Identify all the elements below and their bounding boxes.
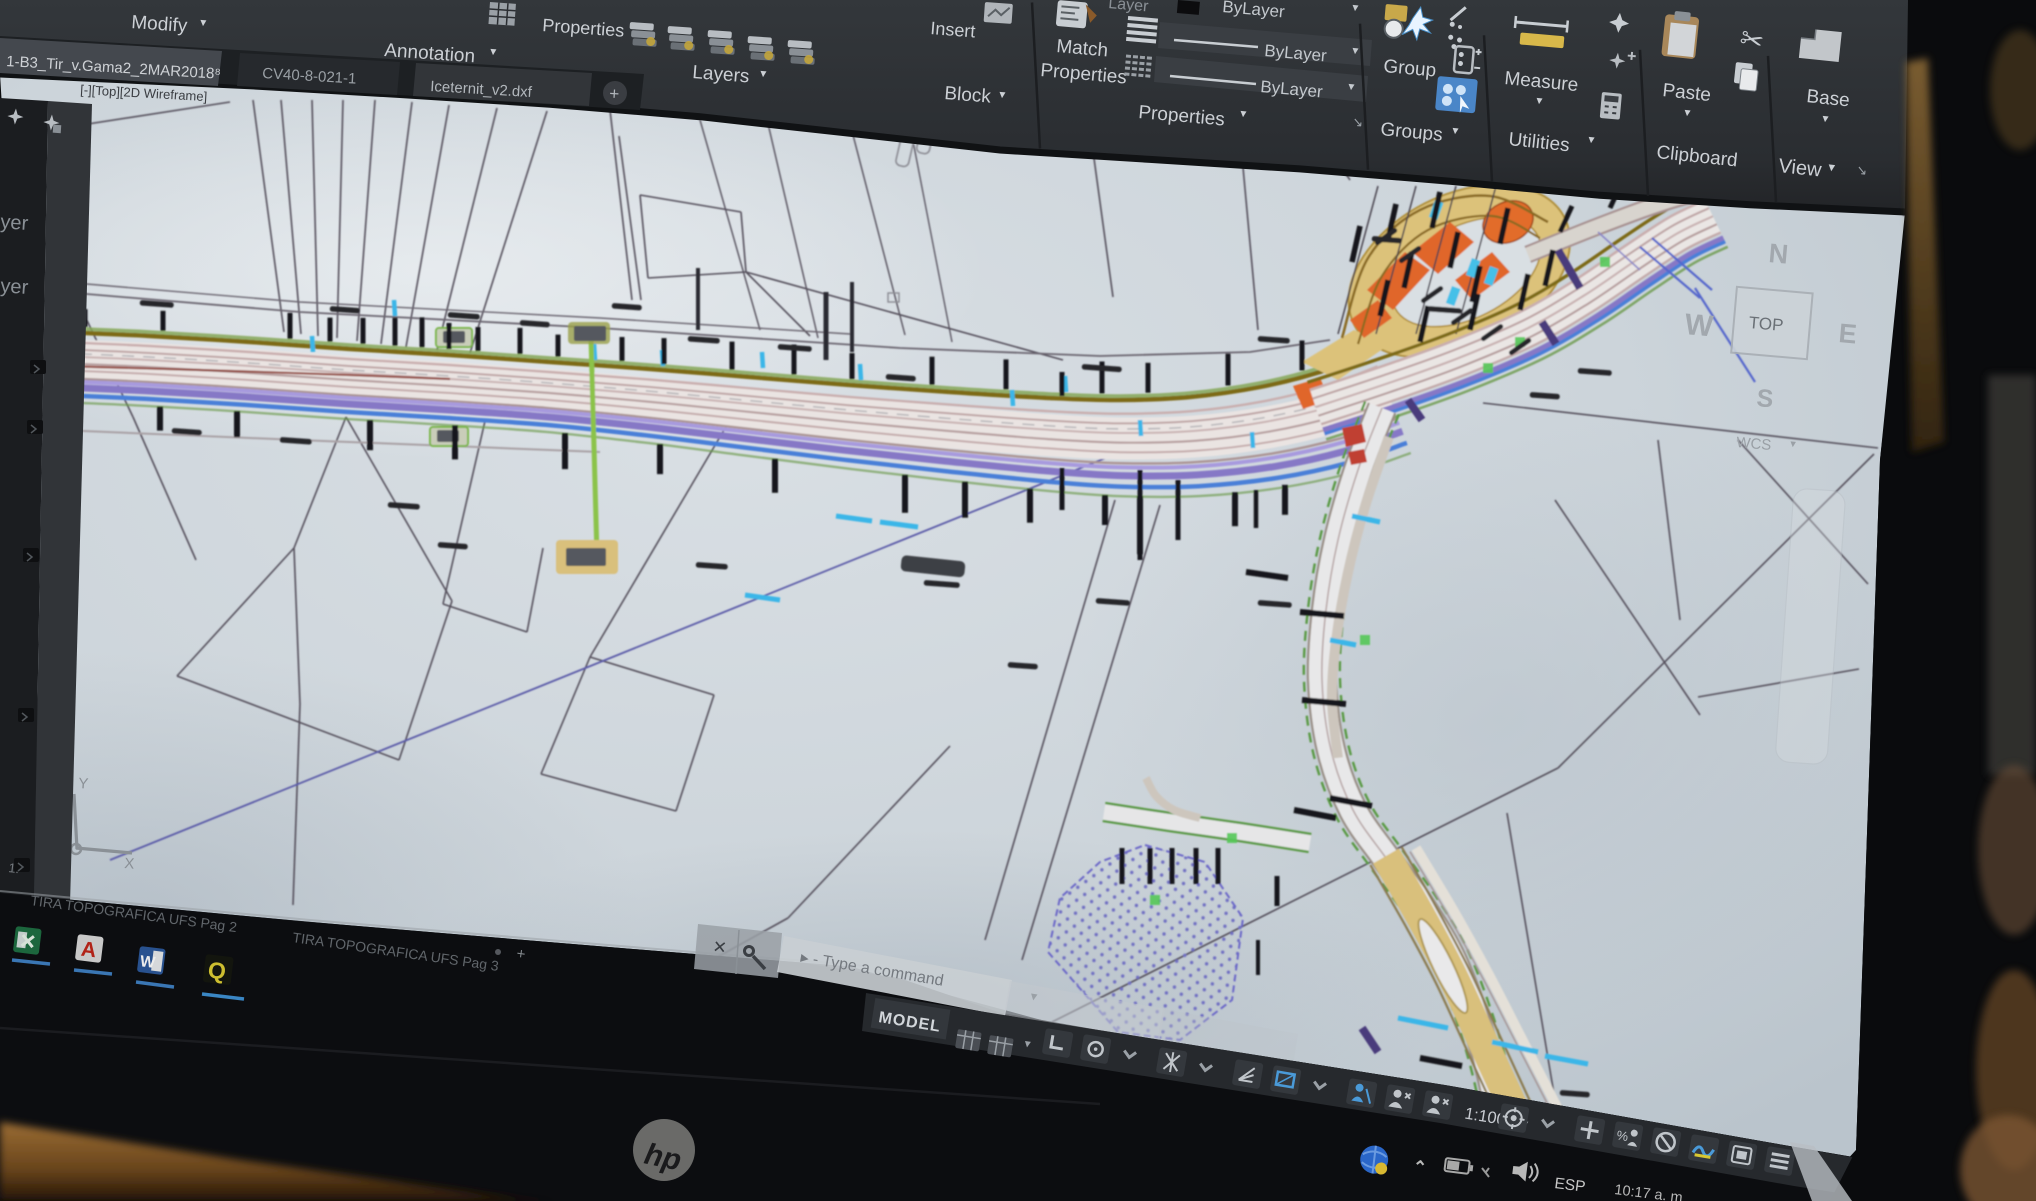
- svg-text:Insert: Insert: [930, 18, 976, 41]
- svg-text:A: A: [80, 938, 98, 963]
- svg-text:E: E: [1837, 318, 1858, 349]
- svg-text:+: +: [609, 84, 620, 104]
- svg-text:↘: ↘: [1352, 114, 1364, 130]
- svg-text:W: W: [139, 953, 157, 972]
- svg-text:Block: Block: [944, 83, 992, 108]
- svg-text:W: W: [1683, 308, 1715, 343]
- svg-text:S: S: [1755, 384, 1774, 413]
- svg-text:yer: yer: [0, 275, 29, 299]
- svg-text:WCS: WCS: [1736, 434, 1772, 454]
- svg-text:Layers: Layers: [692, 62, 751, 87]
- svg-text:Modify: Modify: [131, 12, 189, 37]
- svg-text:yer: yer: [0, 211, 29, 235]
- svg-text:▾: ▾: [200, 15, 207, 29]
- svg-text:↘: ↘: [1856, 162, 1868, 178]
- svg-text:▾: ▾: [999, 87, 1006, 101]
- svg-text:Y: Y: [78, 775, 89, 793]
- svg-text:Q: Q: [207, 956, 228, 984]
- svg-text:View: View: [1777, 155, 1823, 181]
- svg-text:N: N: [1767, 238, 1789, 270]
- svg-text:X: X: [124, 855, 135, 873]
- svg-text:▾: ▾: [1240, 106, 1247, 120]
- svg-text:TOP: TOP: [1748, 313, 1784, 335]
- svg-text:▾: ▾: [760, 66, 767, 80]
- svg-text:▾: ▾: [1348, 79, 1355, 93]
- svg-text:▾: ▾: [490, 44, 497, 58]
- svg-text:▾: ▾: [1352, 43, 1359, 57]
- svg-text:1.: 1.: [8, 860, 21, 876]
- svg-text:▾: ▾: [1352, 0, 1359, 14]
- svg-text:✕: ✕: [712, 937, 728, 958]
- svg-text:⌃: ⌃: [1412, 1157, 1428, 1178]
- svg-text:Match: Match: [1056, 36, 1109, 61]
